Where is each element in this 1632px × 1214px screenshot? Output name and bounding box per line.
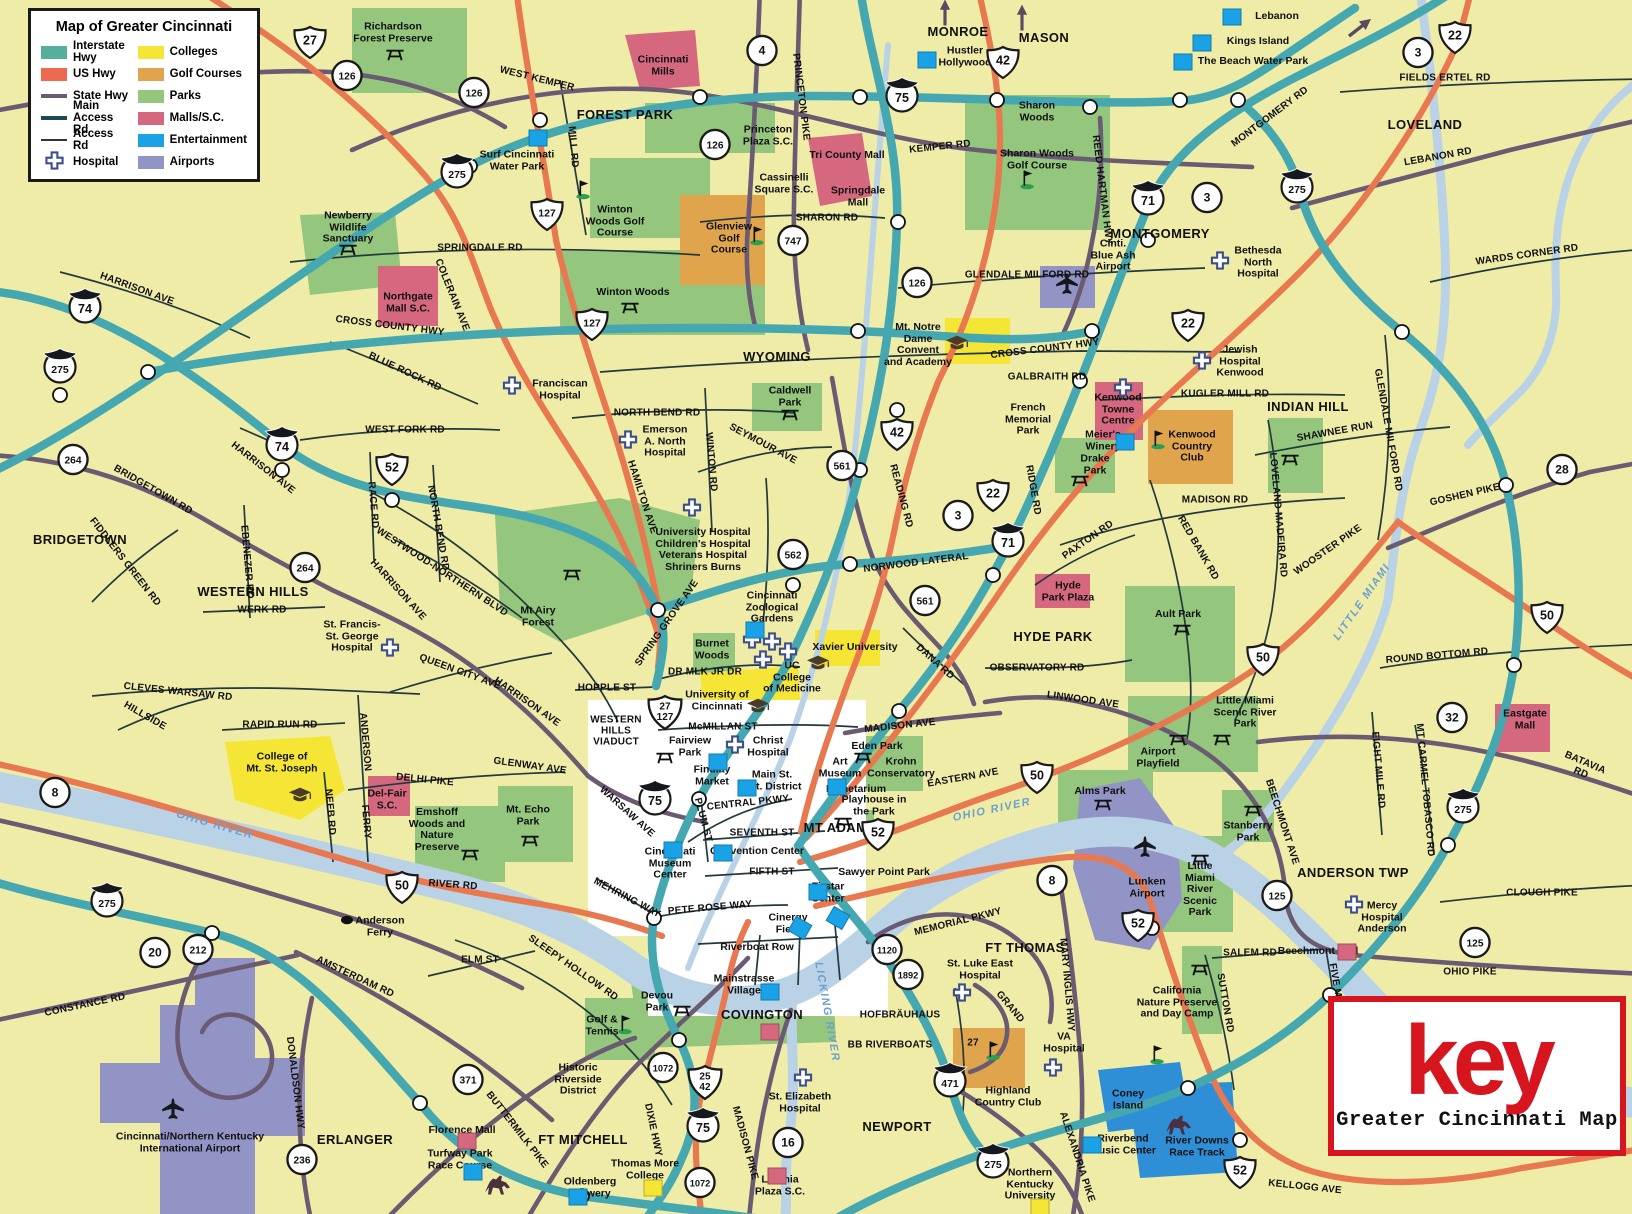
junction-dots — [53, 90, 1521, 1214]
legend-item-label: Parks — [170, 90, 201, 102]
legend-item: Interstate Hwy — [41, 41, 132, 63]
legend-swatch — [138, 46, 164, 59]
legend-item-label: Interstate Hwy — [73, 40, 132, 64]
legend-swatch — [41, 94, 67, 98]
legend-item: Airports — [138, 151, 247, 173]
legend-swatch — [138, 134, 164, 147]
legend-swatch — [138, 112, 164, 125]
legend-item-label: Access Rd — [73, 128, 132, 152]
legend-swatch — [138, 68, 164, 81]
entertainment-square — [714, 845, 733, 862]
entertainment-square — [529, 130, 548, 147]
legend-item-label: Hospital — [73, 156, 118, 168]
entertainment-square — [569, 1189, 588, 1206]
entertainment-square — [709, 754, 728, 771]
entertainment-areas — [1098, 1062, 1238, 1178]
legend-item: Golf Courses — [138, 63, 247, 85]
entertainment-square — [918, 52, 937, 69]
entertainment-square — [664, 842, 683, 859]
key-map-logo: key Greater Cincinnati Map — [1328, 996, 1626, 1156]
hospital-cross-icon — [41, 151, 67, 173]
entertainment-square — [1083, 1137, 1102, 1154]
entertainment-square — [809, 884, 828, 901]
entertainment-square — [1193, 35, 1212, 52]
legend-item: Malls/S.C. — [138, 107, 247, 129]
legend-item-label: Entertainment — [170, 134, 247, 146]
legend-swatch — [41, 46, 67, 59]
key-brand: key — [1404, 1020, 1550, 1100]
mall-square — [761, 1024, 780, 1041]
legend-item-label: Airports — [170, 156, 215, 168]
legend-item: Entertainment — [138, 129, 247, 151]
legend-item: Access Rd — [41, 129, 132, 151]
entertainment-square — [746, 622, 765, 639]
greater-cincinnati-map: Map of Greater Cincinnati Interstate Hwy… — [0, 0, 1632, 1214]
entertainment-square — [761, 984, 780, 1001]
legend-item-label: Colleges — [170, 46, 218, 58]
mall-square — [1338, 944, 1357, 961]
mall-square — [768, 1168, 787, 1185]
legend-swatch — [41, 68, 67, 81]
legend-item-label: US Hwy — [73, 68, 116, 80]
legend-item: Hospital — [41, 151, 132, 173]
logo-tagline: Greater Cincinnati Map — [1336, 1109, 1618, 1132]
college-square — [644, 1180, 663, 1197]
legend-swatch — [41, 116, 67, 120]
legend-item: Colleges — [138, 41, 247, 63]
legend-title: Map of Greater Cincinnati — [41, 19, 247, 35]
legend-item: US Hwy — [41, 63, 132, 85]
legend-left-column: Interstate HwyUS HwyState HwyMain Access… — [41, 41, 132, 173]
entertainment-square — [1116, 434, 1135, 451]
legend-item-label: Malls/S.C. — [170, 112, 224, 124]
entertainment-square — [828, 779, 847, 796]
legend-item: Main Access Rd — [41, 107, 132, 129]
entertainment-square — [464, 1164, 483, 1181]
entertainment-square — [1223, 9, 1242, 26]
entertainment-square — [1174, 54, 1193, 71]
college-square — [1031, 1199, 1050, 1214]
legend-swatch — [138, 156, 164, 169]
legend-right-column: CollegesGolf CoursesParksMalls/S.C.Enter… — [138, 41, 247, 173]
legend-item-label: Golf Courses — [170, 68, 242, 80]
legend-swatch — [41, 139, 67, 141]
legend-item: Parks — [138, 85, 247, 107]
mall-square — [458, 1133, 477, 1150]
legend: Map of Greater Cincinnati Interstate Hwy… — [28, 8, 260, 182]
entertainment-square — [738, 780, 757, 797]
legend-swatch — [138, 90, 164, 103]
